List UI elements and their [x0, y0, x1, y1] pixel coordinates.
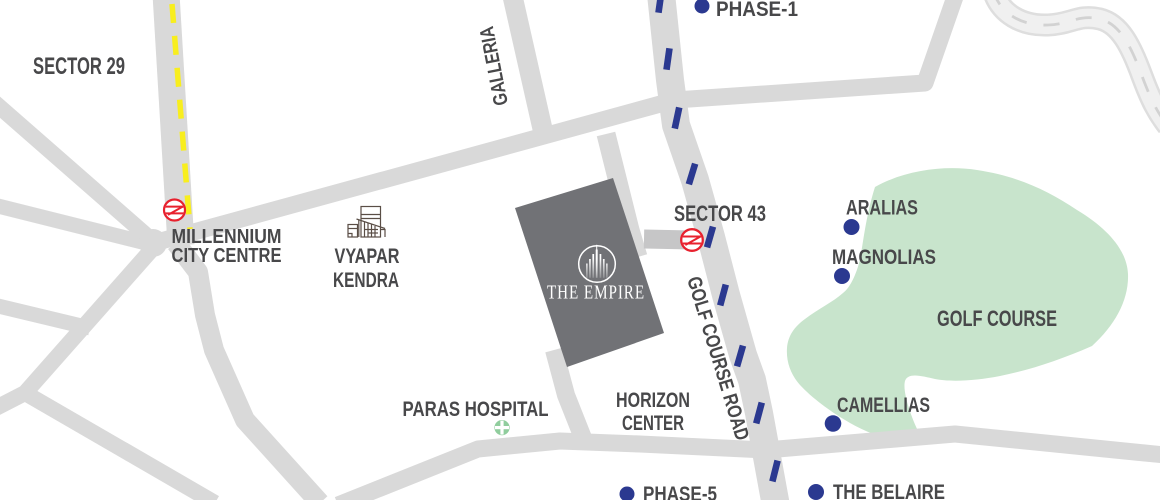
- svg-text:ARALIAS: ARALIAS: [846, 197, 918, 220]
- svg-text:KENDRA: KENDRA: [333, 269, 399, 292]
- svg-text:PHASE-5: PHASE-5: [643, 483, 717, 500]
- svg-text:CENTER: CENTER: [622, 412, 684, 435]
- svg-text:PHASE-1: PHASE-1: [716, 0, 798, 21]
- svg-text:HORIZON: HORIZON: [616, 389, 690, 412]
- svg-text:MAGNOLIAS: MAGNOLIAS: [832, 246, 936, 269]
- svg-text:GOLF COURSE: GOLF COURSE: [937, 306, 1057, 331]
- svg-text:VYAPAR: VYAPAR: [335, 245, 400, 268]
- svg-text:CAMELLIAS: CAMELLIAS: [837, 394, 930, 417]
- svg-text:THE EMPIRE: THE EMPIRE: [547, 282, 645, 304]
- svg-text:CITY CENTRE: CITY CENTRE: [172, 245, 282, 267]
- svg-text:SECTOR 29: SECTOR 29: [33, 53, 125, 80]
- svg-text:THE BELAIRE: THE BELAIRE: [833, 481, 945, 500]
- svg-text:PARAS HOSPITAL: PARAS HOSPITAL: [403, 398, 549, 421]
- svg-text:SECTOR 43: SECTOR 43: [674, 201, 766, 226]
